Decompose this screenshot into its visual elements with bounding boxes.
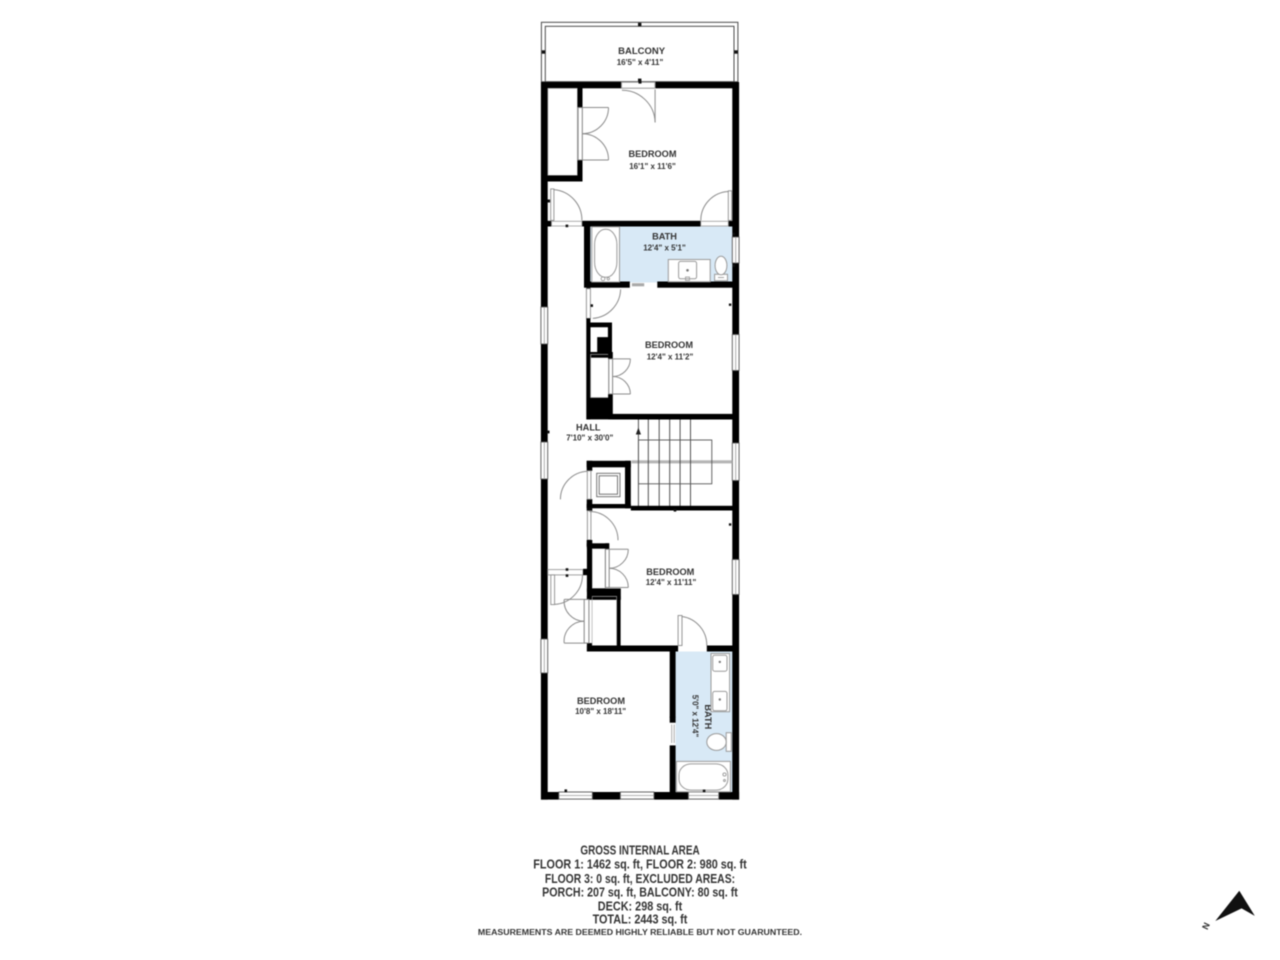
svg-text:BATH: BATH — [652, 232, 677, 242]
svg-text:BALCONY: BALCONY — [618, 46, 666, 57]
svg-text:MEASUREMENTS ARE DEEMED HIGHLY: MEASUREMENTS ARE DEEMED HIGHLY RELIABLE … — [478, 927, 802, 937]
svg-text:TOTAL: 2443 sq. ft: TOTAL: 2443 sq. ft — [593, 912, 688, 927]
svg-text:16'5" x 4'11": 16'5" x 4'11" — [617, 58, 664, 67]
svg-text:5'0" x 12'4": 5'0" x 12'4" — [691, 695, 700, 738]
svg-text:FLOOR 1: 1462 sq. ft, FLOOR 2:: FLOOR 1: 1462 sq. ft, FLOOR 2: 980 sq. f… — [533, 856, 746, 871]
svg-text:HALL: HALL — [576, 423, 601, 433]
svg-text:12'4" x 5'1": 12'4" x 5'1" — [643, 244, 686, 253]
svg-text:10'8" x 18'11": 10'8" x 18'11" — [575, 707, 626, 716]
svg-text:12'4" x 11'2": 12'4" x 11'2" — [647, 352, 694, 361]
svg-text:BEDROOM: BEDROOM — [629, 149, 677, 159]
svg-text:BEDROOM: BEDROOM — [645, 340, 693, 350]
svg-text:BEDROOM: BEDROOM — [646, 567, 694, 577]
svg-text:7'10" x 30'0": 7'10" x 30'0" — [566, 434, 613, 443]
svg-text:BEDROOM: BEDROOM — [577, 696, 625, 706]
svg-text:12'4" x 11'11": 12'4" x 11'11" — [646, 578, 697, 587]
svg-text:16'1" x 11'6": 16'1" x 11'6" — [629, 162, 676, 171]
